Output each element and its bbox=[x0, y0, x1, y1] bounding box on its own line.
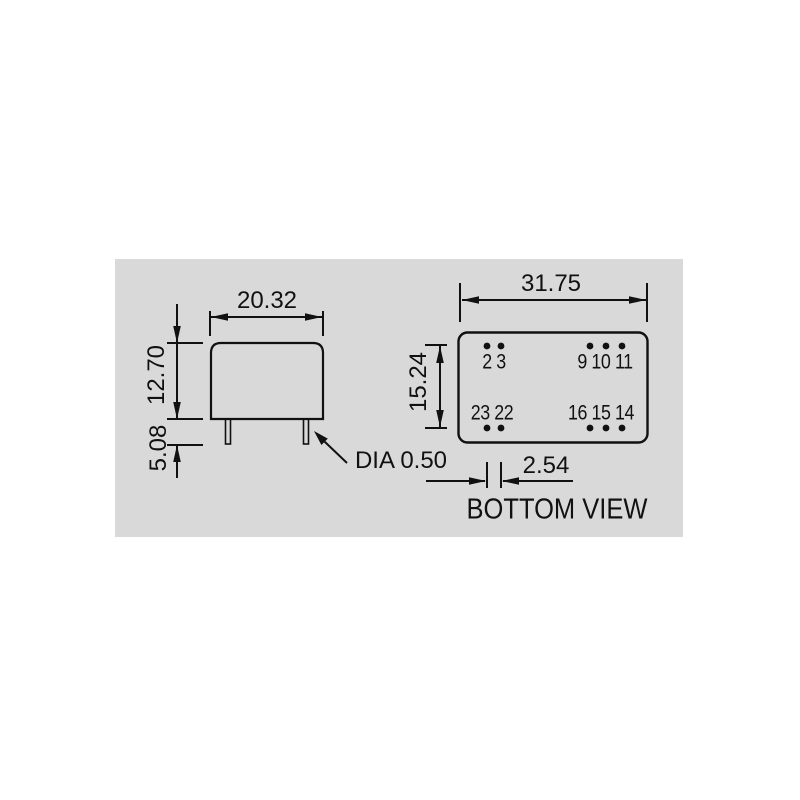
pin-diameter-label: DIA 0.50 bbox=[355, 449, 447, 473]
side-view-pin-left bbox=[226, 419, 231, 444]
pin-label-top-right: 9 10 11 bbox=[577, 352, 632, 373]
pin-label-bottom-left: 23 22 bbox=[471, 403, 514, 424]
pin-pitch-value: 2.54 bbox=[523, 454, 570, 478]
pin-dot bbox=[619, 425, 626, 432]
side-height-dimension bbox=[167, 304, 203, 478]
bottom-view-caption: BOTTOM VIEW bbox=[466, 496, 647, 525]
pin-dot bbox=[603, 343, 610, 350]
arrowhead-right-icon bbox=[469, 477, 486, 485]
side-view-pin-right bbox=[304, 419, 309, 444]
pin-dot bbox=[484, 343, 491, 350]
arrowhead-left-icon bbox=[462, 296, 479, 304]
pin-dot bbox=[587, 425, 594, 432]
pin-length-value: 5.08 bbox=[147, 425, 171, 472]
row-spacing-value: 15.24 bbox=[407, 352, 431, 412]
bottom-width-value: 31.75 bbox=[521, 272, 581, 296]
arrowhead-left-icon bbox=[211, 313, 228, 321]
side-width-value: 20.32 bbox=[237, 289, 297, 313]
side-view bbox=[167, 304, 347, 478]
side-height-value: 12.70 bbox=[145, 345, 169, 405]
pin-dot bbox=[587, 343, 594, 350]
pin-dot bbox=[498, 425, 505, 432]
pin-dot bbox=[603, 425, 610, 432]
arrowhead-up-icon bbox=[436, 346, 444, 363]
arrowhead-right-icon bbox=[629, 296, 646, 304]
arrowhead-left-icon bbox=[502, 477, 519, 485]
pin-dot bbox=[498, 343, 505, 350]
pin-label-bottom-right: 16 15 14 bbox=[568, 403, 634, 424]
pin-dot bbox=[484, 425, 491, 432]
arrowhead-down-icon bbox=[173, 326, 181, 343]
arrowhead-up-icon bbox=[173, 445, 181, 462]
pin-dot bbox=[619, 343, 626, 350]
arrowhead-down-icon bbox=[436, 410, 444, 427]
drawing-linework bbox=[0, 0, 800, 800]
arrowhead-right-icon bbox=[305, 313, 322, 321]
side-width-dimension bbox=[210, 311, 323, 336]
side-view-body bbox=[211, 343, 323, 419]
pin-label-top-left: 2 3 bbox=[482, 352, 506, 373]
arrowhead-down-icon bbox=[173, 402, 181, 419]
pin-diameter-leader bbox=[314, 431, 347, 463]
